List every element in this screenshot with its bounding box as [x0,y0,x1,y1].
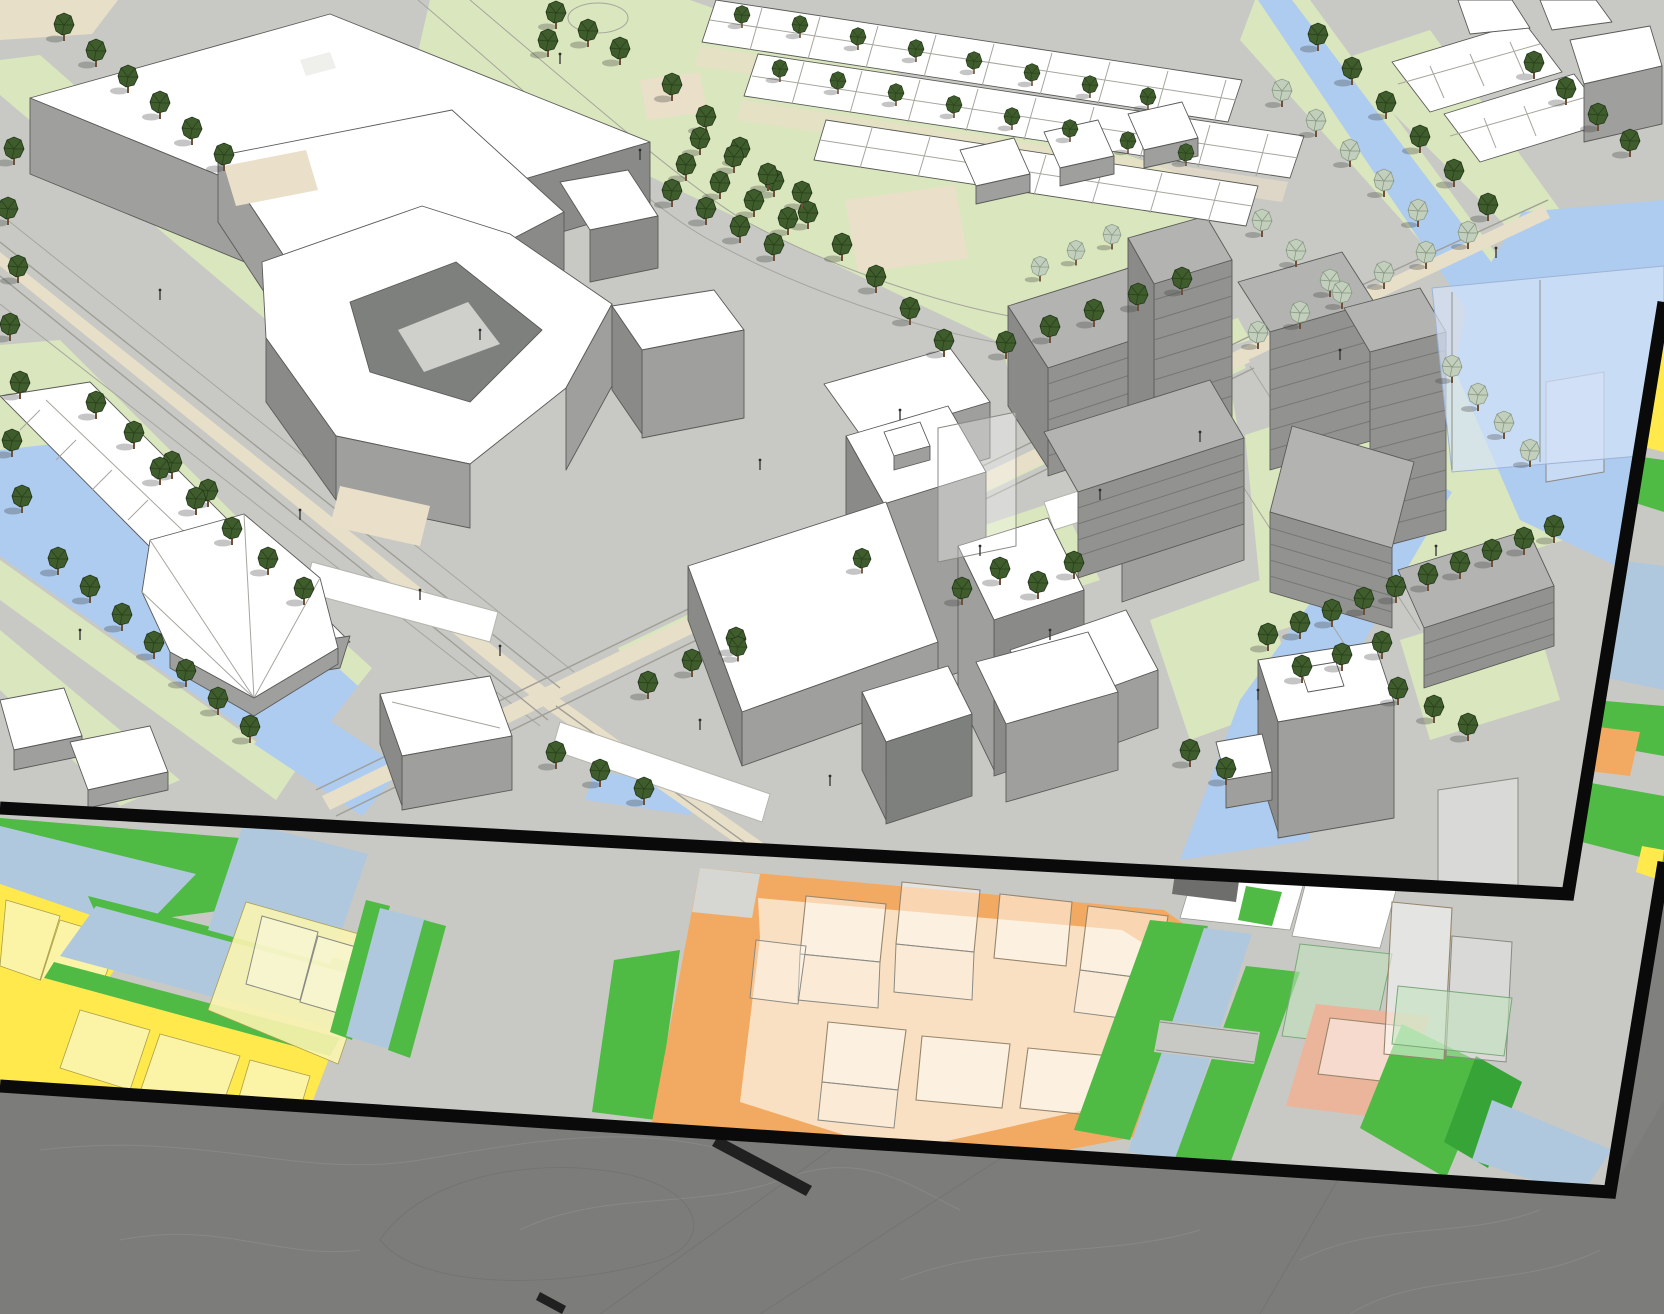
lake-overlay-volume [1432,266,1664,472]
model-viewport[interactable] [0,0,1664,1314]
massing-model [0,0,1664,898]
sand-field [845,185,968,273]
building-box-sw [380,676,512,810]
